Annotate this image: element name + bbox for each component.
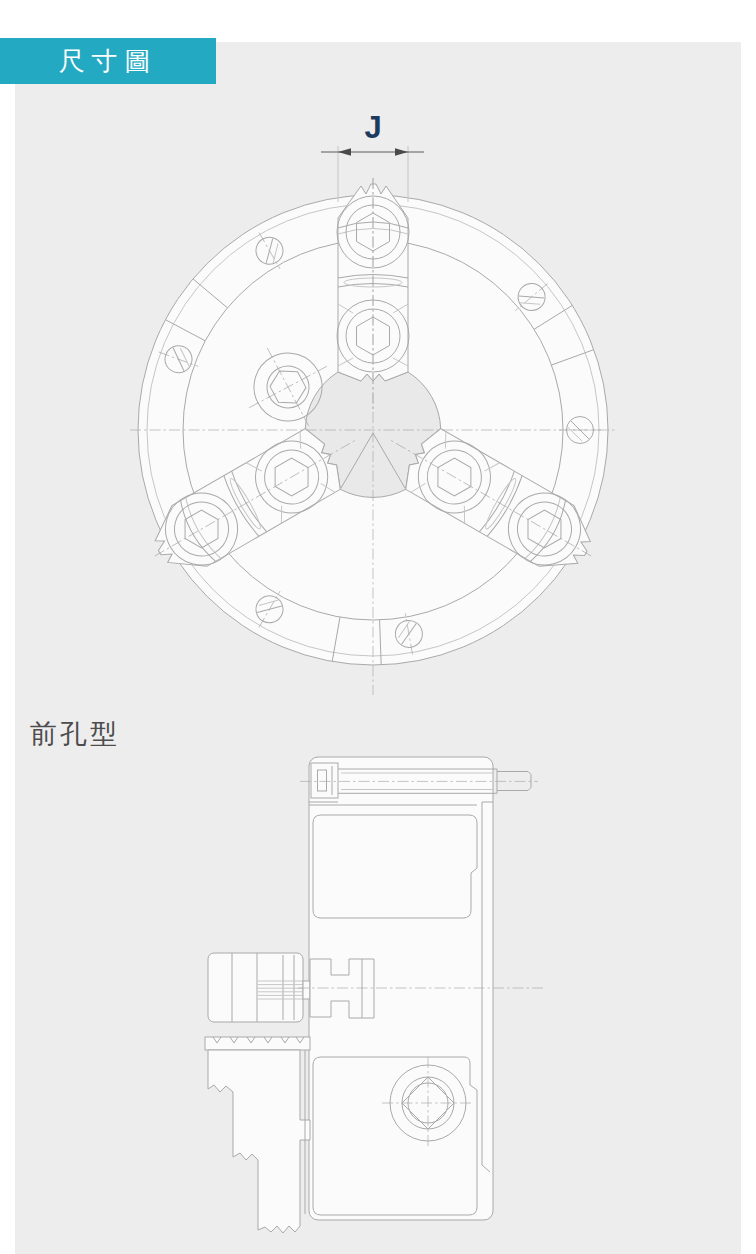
jaw-serration-strip bbox=[205, 1037, 310, 1050]
chuck-front-view bbox=[130, 146, 616, 695]
section-title-badge: 尺寸圖 bbox=[0, 38, 216, 84]
dimension-label-j: J bbox=[355, 110, 391, 146]
section-label-front-hole-type: 前孔型 bbox=[30, 716, 120, 752]
arrow-right-icon bbox=[395, 148, 408, 156]
catalog-page: { "header": { "badge": "尺寸圖" }, "front_v… bbox=[0, 0, 756, 1254]
technical-drawing-canvas bbox=[0, 0, 756, 1254]
arrow-left-icon bbox=[338, 148, 351, 156]
stepped-jaw-profile bbox=[208, 1050, 310, 1233]
chuck-side-view bbox=[205, 757, 545, 1233]
pinion-boss bbox=[208, 953, 310, 1022]
